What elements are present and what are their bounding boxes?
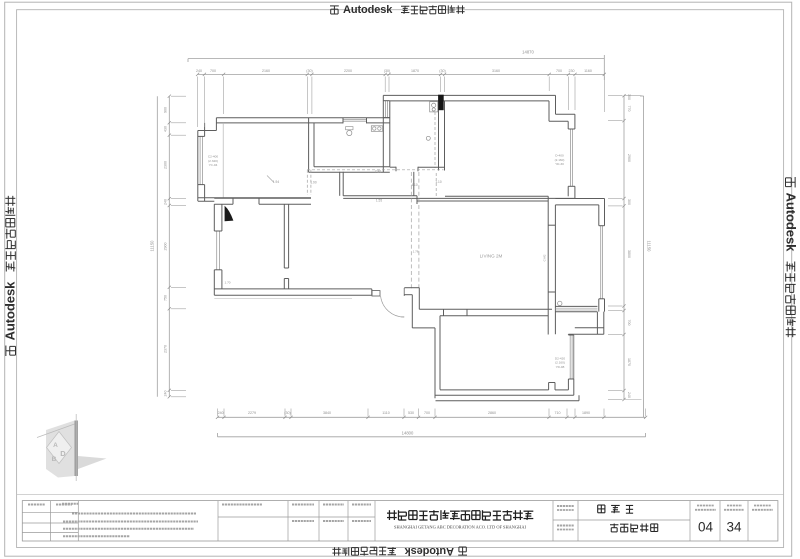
svg-text:530: 530 <box>408 411 414 415</box>
svg-text:1160: 1160 <box>584 69 592 73</box>
svg-text:1890: 1890 <box>582 411 590 415</box>
svg-text:7.80: 7.80 <box>375 170 381 174</box>
svg-text:240: 240 <box>218 411 224 415</box>
svg-text:11150: 11150 <box>647 240 652 252</box>
svg-text:430: 430 <box>164 126 168 132</box>
svg-text:YD-08: YD-08 <box>556 365 565 369</box>
svg-text:SHANGHAI GETANG ABC DECORATION: SHANGHAI GETANG ABC DECORATION ACO. LTD … <box>394 525 526 530</box>
svg-text:2900: 2900 <box>164 243 168 251</box>
svg-text:300: 300 <box>627 94 631 100</box>
svg-text:1110: 1110 <box>382 411 389 415</box>
svg-text:1.94: 1.94 <box>273 180 279 184</box>
svg-text:11150: 11150 <box>150 240 155 252</box>
svg-text:04: 04 <box>698 520 714 535</box>
svg-text:710: 710 <box>555 411 561 415</box>
svg-text:YC-04: YC-04 <box>209 163 218 167</box>
svg-text:240: 240 <box>164 391 168 397</box>
svg-text:4.10: 4.10 <box>411 183 417 187</box>
svg-text:14800: 14800 <box>402 431 414 436</box>
svg-text:3840: 3840 <box>323 411 331 415</box>
svg-text:1870: 1870 <box>411 69 419 73</box>
svg-text:900: 900 <box>164 107 168 113</box>
svg-text:Autodesk: Autodesk <box>3 281 18 341</box>
svg-text:2279: 2279 <box>248 411 256 415</box>
svg-text:750: 750 <box>164 295 168 301</box>
svg-text:700: 700 <box>627 320 631 326</box>
svg-text:1.78: 1.78 <box>413 250 419 254</box>
svg-text:230: 230 <box>569 69 575 73</box>
svg-text:(30): (30) <box>306 69 312 73</box>
svg-text:700: 700 <box>210 69 216 73</box>
svg-text:2900: 2900 <box>627 154 631 162</box>
svg-text:300: 300 <box>627 199 631 205</box>
svg-text:(30): (30) <box>384 69 390 73</box>
svg-text:240: 240 <box>627 392 631 398</box>
svg-text:B: B <box>52 456 57 463</box>
svg-text:3800: 3800 <box>627 250 631 258</box>
svg-text:Autodesk: Autodesk <box>784 192 799 252</box>
svg-text:14870: 14870 <box>522 50 534 55</box>
svg-text:1.55: 1.55 <box>376 198 382 202</box>
svg-text:240: 240 <box>164 199 168 205</box>
svg-text:2370: 2370 <box>164 345 168 353</box>
svg-text:LIVING 2M: LIVING 2M <box>480 254 503 259</box>
svg-text:3160: 3160 <box>492 69 500 73</box>
svg-text:1.90: 1.90 <box>310 181 316 185</box>
svg-text:2160: 2160 <box>262 69 270 73</box>
svg-text:Autodesk: Autodesk <box>343 4 393 16</box>
svg-text:(30): (30) <box>284 411 290 415</box>
svg-text:C-M2: C-M2 <box>543 254 547 261</box>
svg-text:A: A <box>53 442 58 449</box>
svg-text:2300: 2300 <box>164 161 168 169</box>
svg-text:34: 34 <box>726 520 742 535</box>
svg-text:(30): (30) <box>439 69 445 73</box>
svg-text:YD-30: YD-30 <box>555 162 564 166</box>
svg-text:Autodesk: Autodesk <box>404 545 454 557</box>
svg-text:D: D <box>60 449 66 458</box>
svg-text:2860: 2860 <box>488 411 496 415</box>
svg-text:2200: 2200 <box>344 69 352 73</box>
svg-text:700: 700 <box>424 411 430 415</box>
svg-text:240: 240 <box>196 69 202 73</box>
svg-text:700: 700 <box>556 69 562 73</box>
svg-text:1870: 1870 <box>627 358 631 366</box>
svg-text:770: 770 <box>627 106 631 112</box>
svg-text:1.70: 1.70 <box>224 280 230 284</box>
